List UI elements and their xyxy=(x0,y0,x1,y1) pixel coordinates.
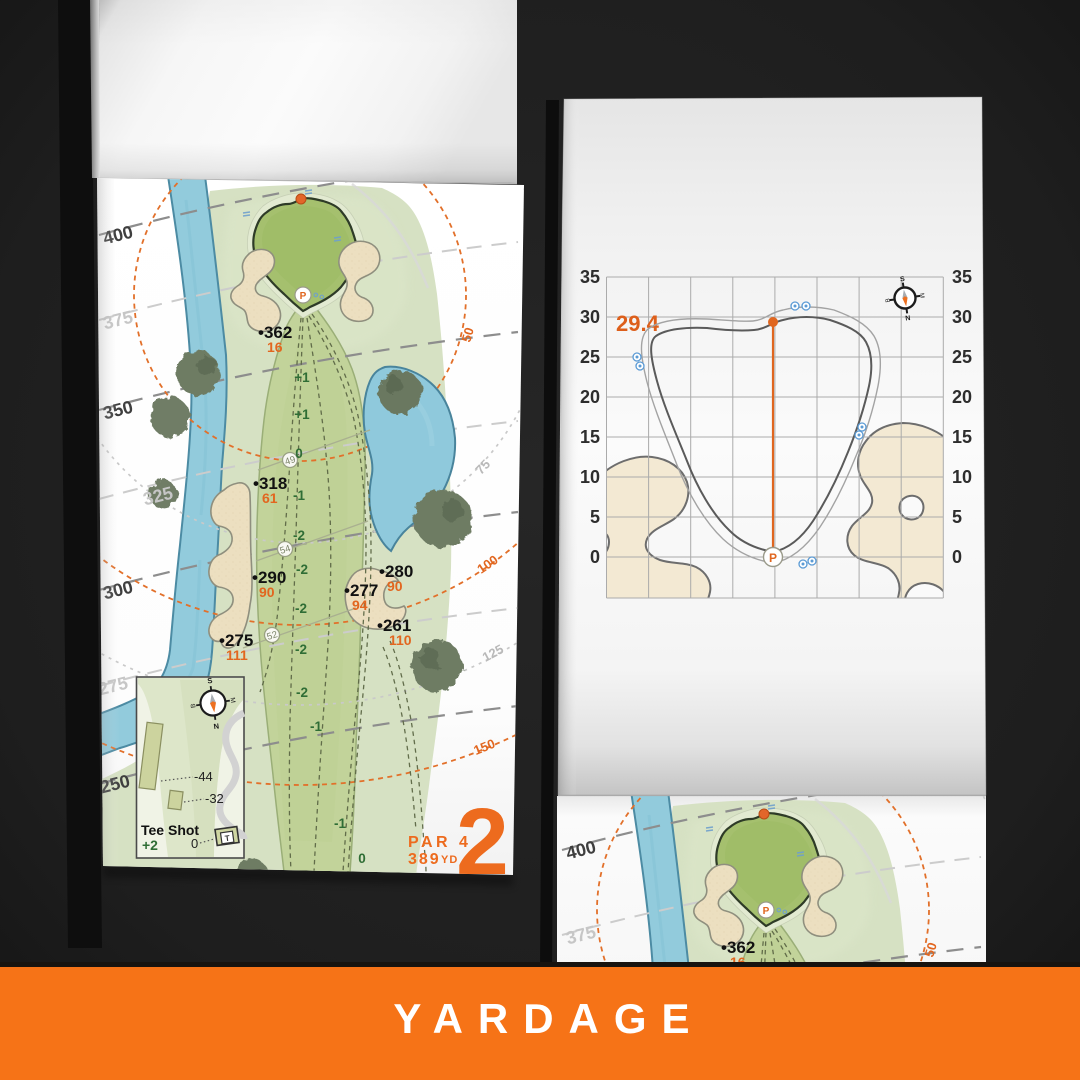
svg-text:10: 10 xyxy=(952,467,972,487)
svg-text:5: 5 xyxy=(590,507,600,527)
svg-text:10: 10 xyxy=(580,467,600,487)
svg-text:25: 25 xyxy=(952,347,972,367)
svg-text:30: 30 xyxy=(580,307,600,327)
svg-text:YARDAGE: YARDAGE xyxy=(393,995,704,1042)
svg-text:29.4: 29.4 xyxy=(616,311,660,336)
svg-text:N: N xyxy=(905,315,911,323)
svg-text:0: 0 xyxy=(952,547,962,567)
svg-text:20: 20 xyxy=(580,387,600,407)
svg-text:25: 25 xyxy=(580,347,600,367)
svg-text:20: 20 xyxy=(952,387,972,407)
svg-text:30: 30 xyxy=(952,307,972,327)
svg-text:B: B xyxy=(885,298,892,303)
svg-text:35: 35 xyxy=(580,267,600,287)
svg-text:P: P xyxy=(769,551,777,565)
svg-text:35: 35 xyxy=(952,267,972,287)
svg-text:M: M xyxy=(918,293,925,299)
svg-text:15: 15 xyxy=(952,427,972,447)
svg-text:5: 5 xyxy=(952,507,962,527)
svg-text:15: 15 xyxy=(580,427,600,447)
svg-text:0: 0 xyxy=(590,547,600,567)
